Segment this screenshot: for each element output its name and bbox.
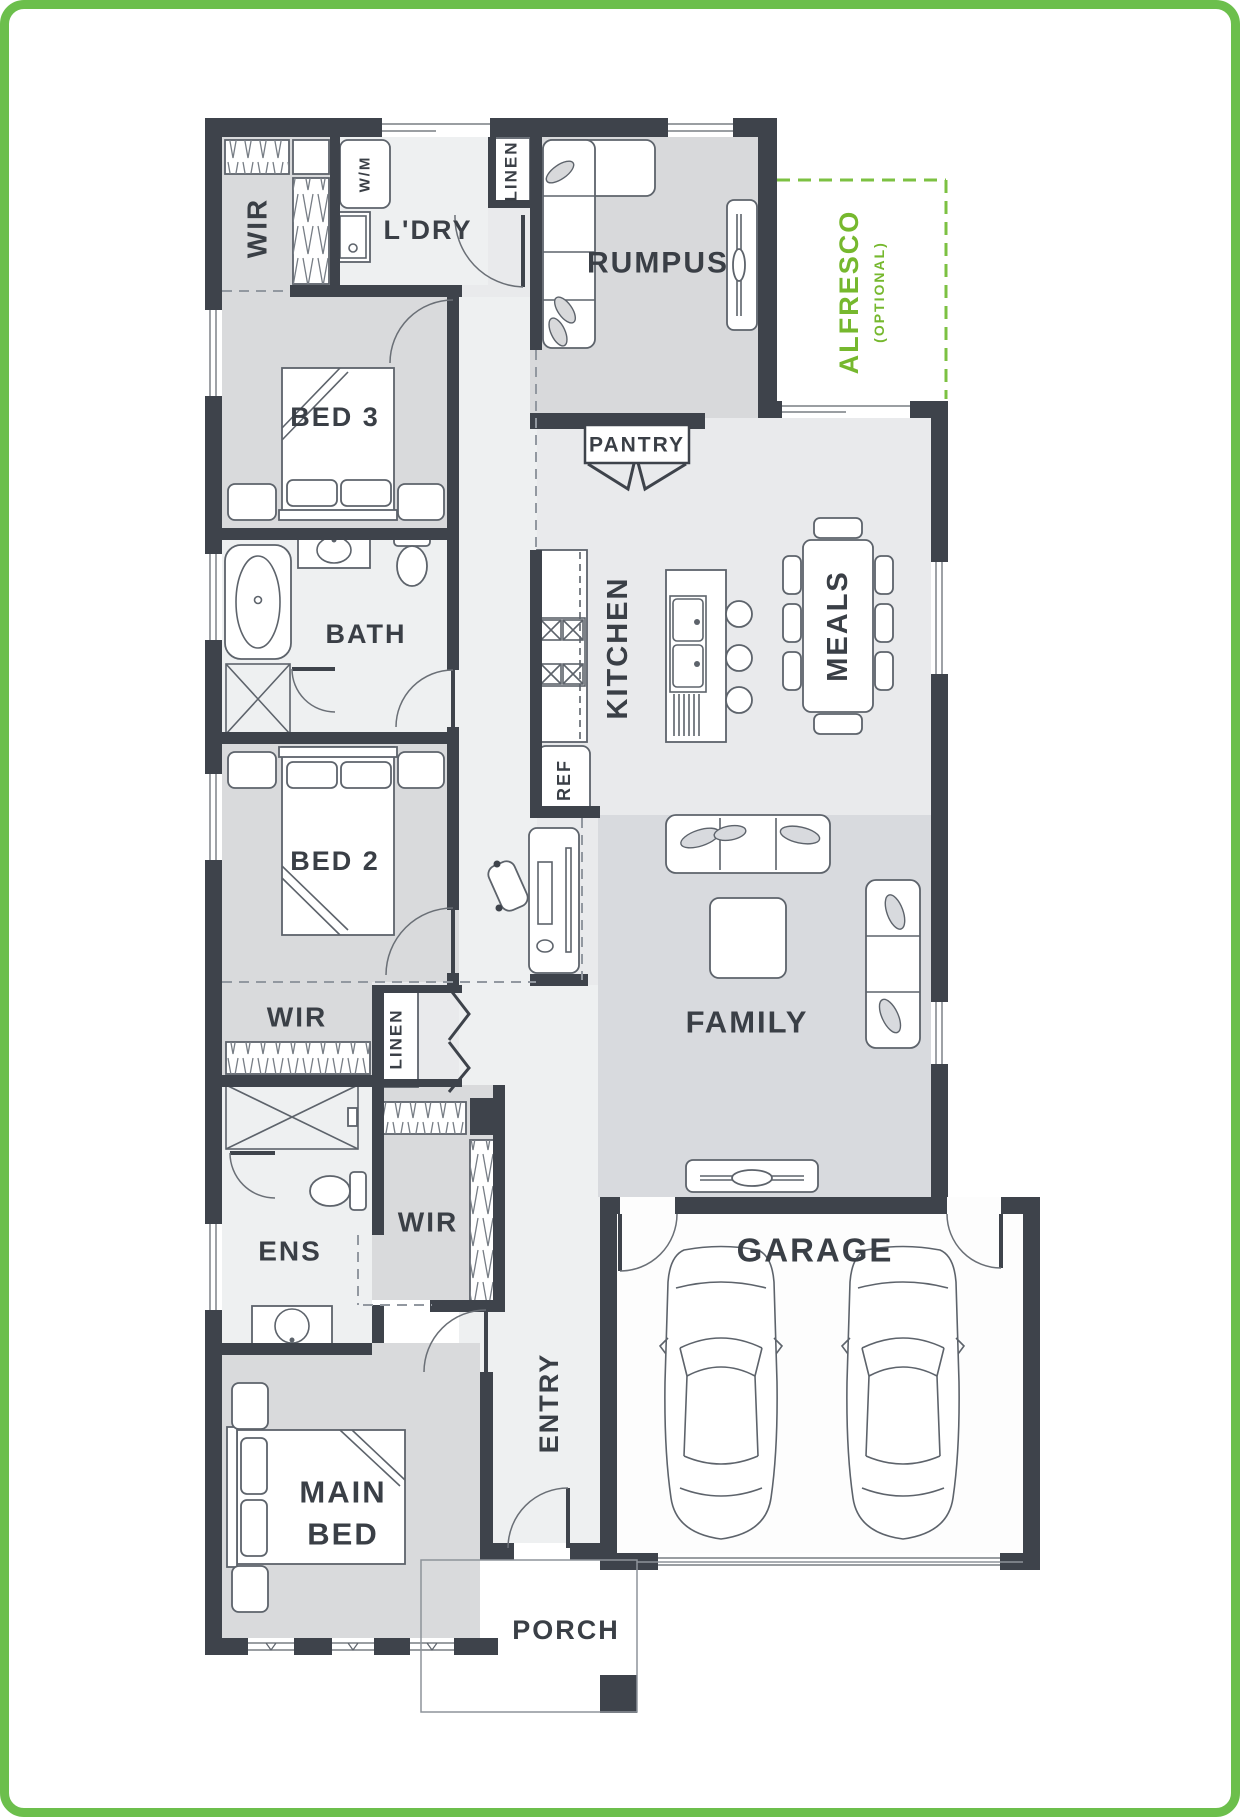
bed2-pillow-1 [287, 762, 337, 788]
wall-bed3-bath [222, 528, 459, 540]
label-alfresco-optional: (OPTIONAL) [871, 241, 887, 343]
ens-tap [290, 1338, 295, 1343]
car-right [842, 1247, 964, 1540]
wall-entry-bottom-left [480, 1543, 514, 1560]
label-wir-main: WIR [398, 1207, 458, 1238]
wall-wir-laundry [330, 136, 340, 286]
rumpus-tv-base [733, 249, 745, 281]
wall-bath-bed2 [222, 732, 459, 744]
wall-nook-bottom [530, 974, 588, 986]
label-main-bed-1: MAIN [299, 1475, 386, 1510]
wardrobe-rail-wir-top-a-hatch [225, 140, 289, 174]
label-wir-mid: WIR [267, 1002, 327, 1033]
wardrobe-rail-wir-main-top-hatch [378, 1102, 466, 1134]
wall-linen-mid-left [372, 985, 384, 1085]
bed2-side-table-right [398, 752, 444, 788]
opening-garage-rear-door [947, 1197, 1001, 1214]
label-kitchen: KITCHEN [602, 577, 634, 720]
wall-garage-left [600, 1214, 617, 1570]
opening-family-garage [620, 1197, 675, 1214]
front-door-threshold [514, 1543, 570, 1560]
wall-ens-wir-upper [372, 1085, 384, 1235]
window-bath [205, 554, 222, 640]
main-bed-pillow-1 [241, 1438, 267, 1494]
bed3-pillow-1 [287, 480, 337, 506]
window-bed3 [205, 310, 222, 396]
label-linen-mid: LINEN [387, 1009, 406, 1070]
main-bed-side-table-top [232, 1383, 268, 1429]
meals-chair-right-2 [875, 604, 893, 642]
bed2-pillow-2 [341, 762, 391, 788]
ens-toilet-cistern [350, 1172, 366, 1210]
meals-chair-bottom [814, 714, 862, 734]
label-meals: MEALS [822, 570, 854, 682]
wall-ens-wir-lower [372, 1305, 384, 1343]
window-main-bed-1 [248, 1638, 294, 1655]
label-family: FAMILY [686, 1005, 809, 1040]
island-stool-2 [726, 645, 752, 671]
island-stool-1 [726, 601, 752, 627]
label-laundry: L'DRY [384, 215, 473, 245]
label-porch: PORCH [512, 1615, 620, 1645]
wall-laundry-bottom [290, 285, 462, 297]
window-alfresco-slider [782, 401, 910, 418]
window-family [931, 1002, 948, 1064]
label-fridge: REF [554, 759, 574, 801]
window-main-bed-3 [410, 1638, 454, 1655]
ens-shower-head [348, 1108, 357, 1126]
bed3-headboard [279, 510, 397, 520]
label-washing-machine: W/M [357, 156, 374, 193]
wall-wir-main-block [470, 1098, 505, 1135]
label-main-bed-2: BED [307, 1517, 378, 1552]
window-meals [931, 562, 948, 674]
wall-rumpus-left [530, 136, 542, 350]
label-ens: ENS [258, 1236, 322, 1267]
main-bed-headboard [227, 1427, 237, 1567]
wardrobe-shelf-wir-top [293, 140, 329, 174]
meals-chair-left-3 [783, 652, 801, 690]
bed2-headboard [279, 747, 397, 757]
meals-chair-left-2 [783, 604, 801, 642]
bed2-side-table-left [228, 752, 276, 788]
wall-garage-right [1023, 1197, 1040, 1570]
wardrobe-rail-wir-mid-hatch [226, 1042, 370, 1074]
wall-wir-ens [222, 1075, 372, 1087]
family-tv-base [732, 1170, 772, 1186]
meals-chair-top [814, 518, 862, 538]
bath-toilet-bowl [397, 546, 427, 586]
window-ens [205, 1224, 222, 1310]
bed3-side-table-right [398, 484, 444, 520]
bed3-side-table-left [228, 484, 276, 520]
window-main-bed-2 [332, 1638, 374, 1655]
label-alfresco: ALFRESCO [834, 210, 864, 375]
label-pantry: PANTRY [589, 434, 685, 457]
wardrobe-rail-wir-top-b-hatch [293, 178, 329, 284]
wall-nook-top [530, 806, 600, 818]
bathtub [225, 545, 291, 659]
laundry-trough [336, 212, 370, 262]
wall-ens-main-bed [222, 1343, 372, 1355]
label-bed3: BED 3 [290, 402, 380, 432]
wall-rumpus-right [758, 118, 777, 418]
wall-hall-mid [447, 727, 459, 910]
ens-toilet-bowl [310, 1176, 350, 1206]
window-rumpus [668, 118, 733, 137]
label-rumpus: RUMPUS [587, 247, 729, 280]
island-tap-2 [694, 661, 700, 667]
window-bed2 [205, 774, 222, 860]
main-bed-side-table-bottom [232, 1566, 268, 1612]
floor-plan: WIR L'DRY W/M LINEN RUMPUS ALFRESCO (OPT… [0, 0, 1240, 1817]
coffee-table [710, 898, 786, 978]
meals-chair-right-3 [875, 652, 893, 690]
label-linen-top: LINEN [502, 141, 521, 202]
island-tap-1 [694, 619, 700, 625]
meals-chair-right-1 [875, 556, 893, 594]
wall-kitchen-back [530, 550, 542, 816]
wall-main-bed-entry [480, 1372, 493, 1543]
label-bed2: BED 2 [290, 846, 380, 876]
label-garage: GARAGE [737, 1232, 894, 1269]
wall-linen-top-left [488, 136, 496, 206]
label-wir-top: WIR [242, 198, 273, 258]
meals-chair-left-1 [783, 556, 801, 594]
wall-linen-mid-bottom [372, 1079, 462, 1087]
porch-post [600, 1675, 637, 1713]
desk-chair-arm-1 [494, 861, 501, 868]
wall-wir-main-bottom [430, 1300, 505, 1312]
label-entry: ENTRY [534, 1353, 564, 1454]
desk-chair-arm-2 [496, 905, 503, 912]
car-left [660, 1247, 782, 1540]
wall-exterior-right [931, 401, 948, 1214]
bed3-pillow-2 [341, 480, 391, 506]
label-bath: BATH [326, 619, 407, 649]
island-stool-3 [726, 687, 752, 713]
window-laundry [382, 118, 490, 137]
main-bed-pillow-2 [241, 1500, 267, 1556]
